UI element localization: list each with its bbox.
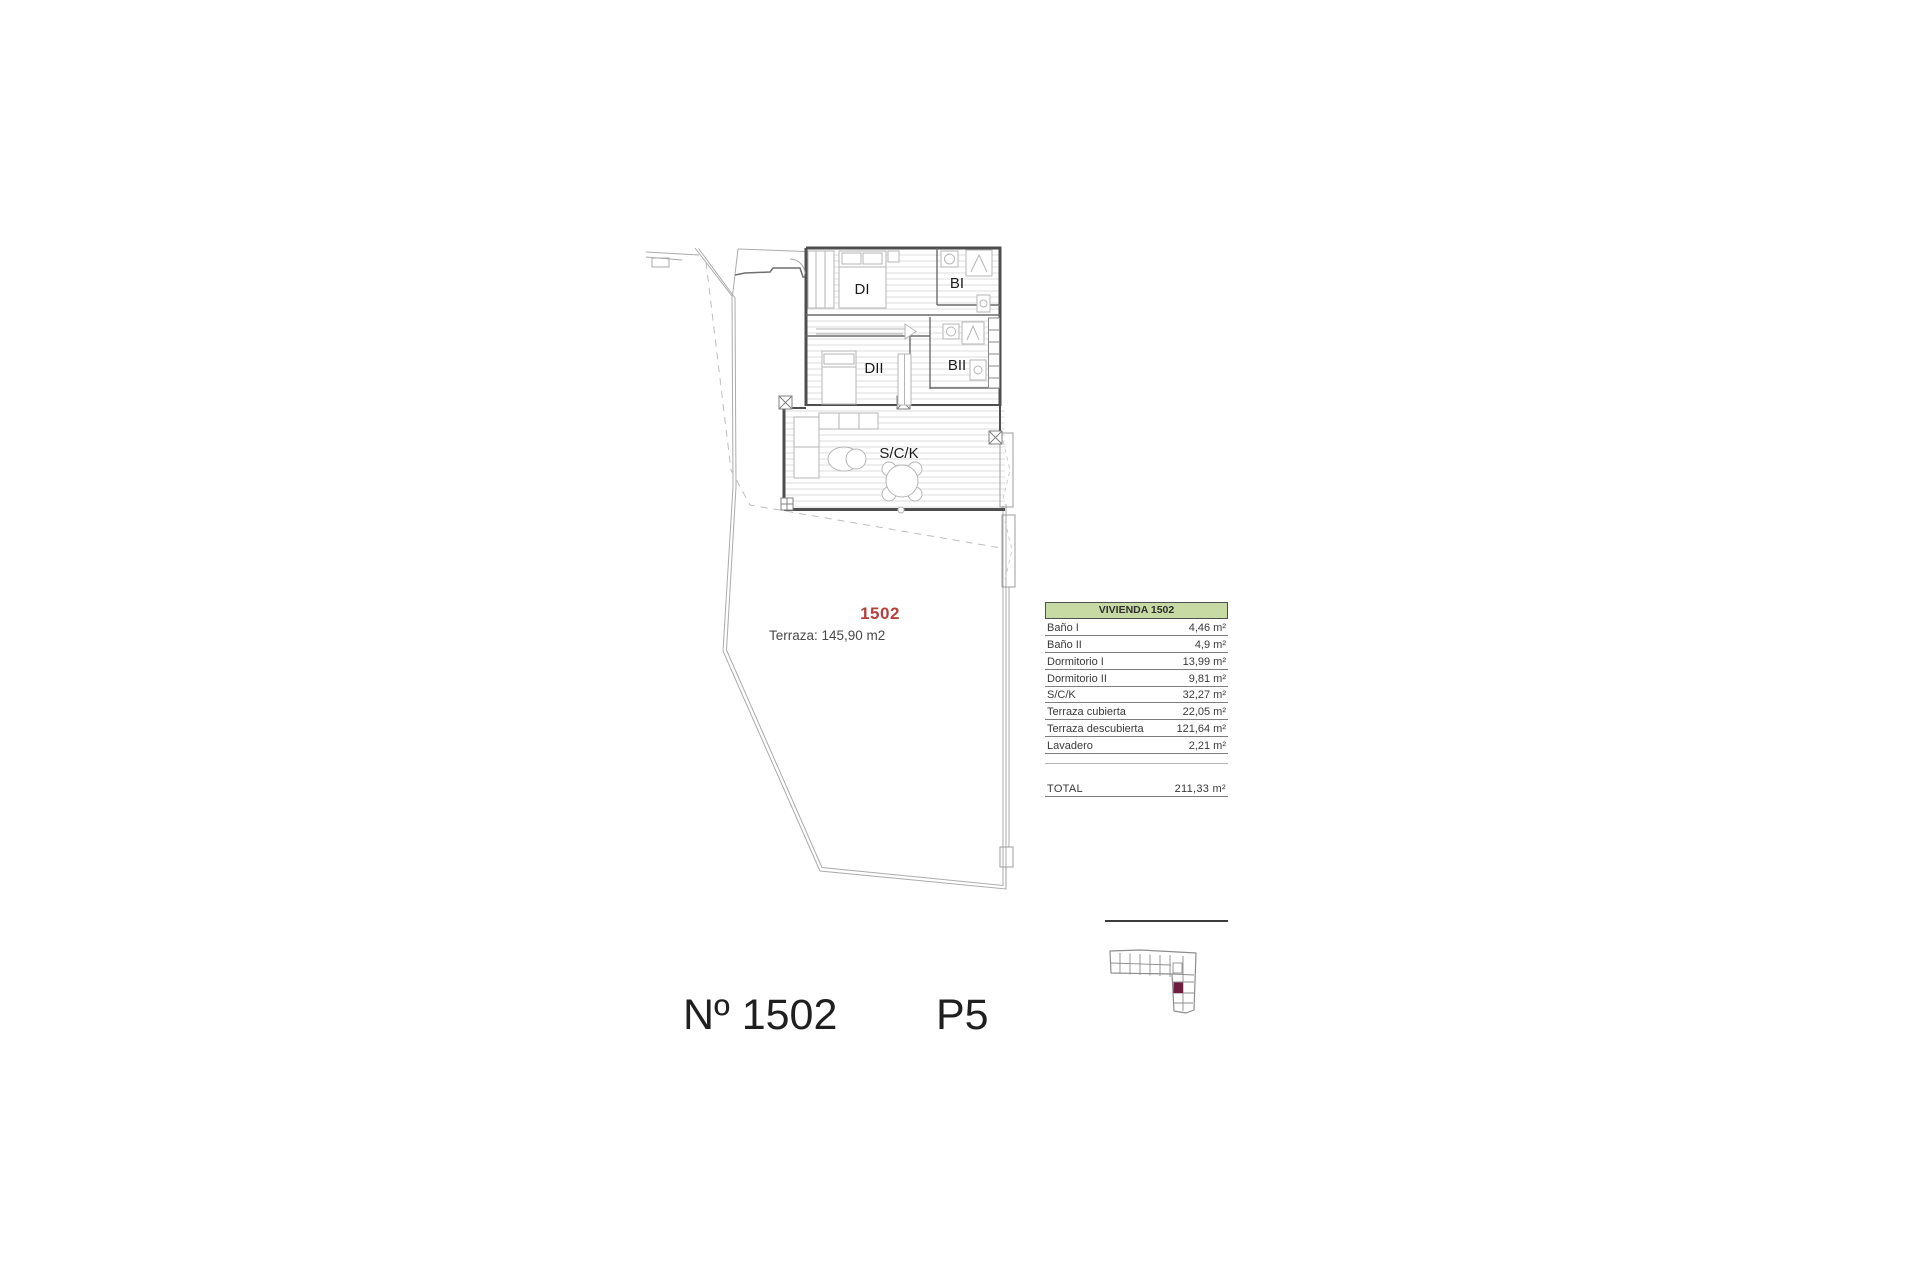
floor-plan-sheet: DI BI DII BII S/C/K 1502 Terraza: 145,90… — [0, 0, 1920, 1280]
table-row: Terraza descubierta 121,64 m² — [1045, 720, 1228, 737]
row-label: Dormitorio II — [1047, 673, 1107, 685]
room-label-dormitorio1: DI — [855, 281, 870, 298]
row-label: Terraza descubierta — [1047, 723, 1144, 735]
area-table: VIVIENDA 1502 Baño I 4,46 m² Baño II 4,9… — [1045, 602, 1228, 797]
table-row: Terraza cubierta 22,05 m² — [1045, 703, 1228, 720]
room-label-dormitorio2: DII — [864, 360, 883, 377]
row-label: Baño II — [1047, 639, 1082, 651]
plan-unit-number: 1502 — [853, 604, 907, 624]
key-plan — [1105, 921, 1228, 1013]
floor-plan-drawing: DI BI DII BII S/C/K — [0, 0, 1920, 1280]
row-value: 121,64 m² — [1176, 723, 1226, 735]
row-label: Baño I — [1047, 622, 1079, 634]
table-row: Baño I 4,46 m² — [1045, 619, 1228, 636]
key-plan-highlighted-unit — [1174, 983, 1184, 994]
row-value: 4,9 m² — [1195, 639, 1226, 651]
row-value: 9,81 m² — [1189, 673, 1226, 685]
total-label: TOTAL — [1047, 783, 1083, 795]
footer-unit-number: Nº 1502 — [683, 991, 837, 1040]
row-value: 4,46 m² — [1189, 622, 1226, 634]
table-row: S/C/K 32,27 m² — [1045, 687, 1228, 704]
table-row: Baño II 4,9 m² — [1045, 636, 1228, 653]
table-row: Lavadero 2,21 m² — [1045, 737, 1228, 754]
services-shaft — [989, 318, 1000, 388]
row-value: 2,21 m² — [1189, 740, 1226, 752]
row-value: 32,27 m² — [1183, 689, 1226, 701]
table-row: Dormitorio II 9,81 m² — [1045, 670, 1228, 687]
terrace-area-note: Terraza: 145,90 m2 — [769, 628, 885, 643]
row-label: Lavadero — [1047, 740, 1093, 752]
footer-floor-label: P5 — [936, 991, 989, 1040]
entry-step — [735, 268, 805, 277]
room-label-bano1: BI — [950, 275, 964, 292]
row-value: 13,99 m² — [1183, 656, 1226, 668]
table-spacer-row — [1045, 754, 1228, 764]
row-value: 22,05 m² — [1183, 706, 1226, 718]
row-label: Terraza cubierta — [1047, 706, 1126, 718]
table-row: Dormitorio I 13,99 m² — [1045, 653, 1228, 670]
room-label-salon: S/C/K — [879, 445, 918, 462]
table-total-row: TOTAL 211,33 m² — [1045, 778, 1228, 797]
row-label: S/C/K — [1047, 689, 1076, 701]
row-label: Dormitorio I — [1047, 656, 1104, 668]
total-value: 211,33 m² — [1175, 783, 1226, 795]
room-label-bano2: BII — [948, 357, 966, 374]
area-table-header: VIVIENDA 1502 — [1045, 602, 1228, 619]
